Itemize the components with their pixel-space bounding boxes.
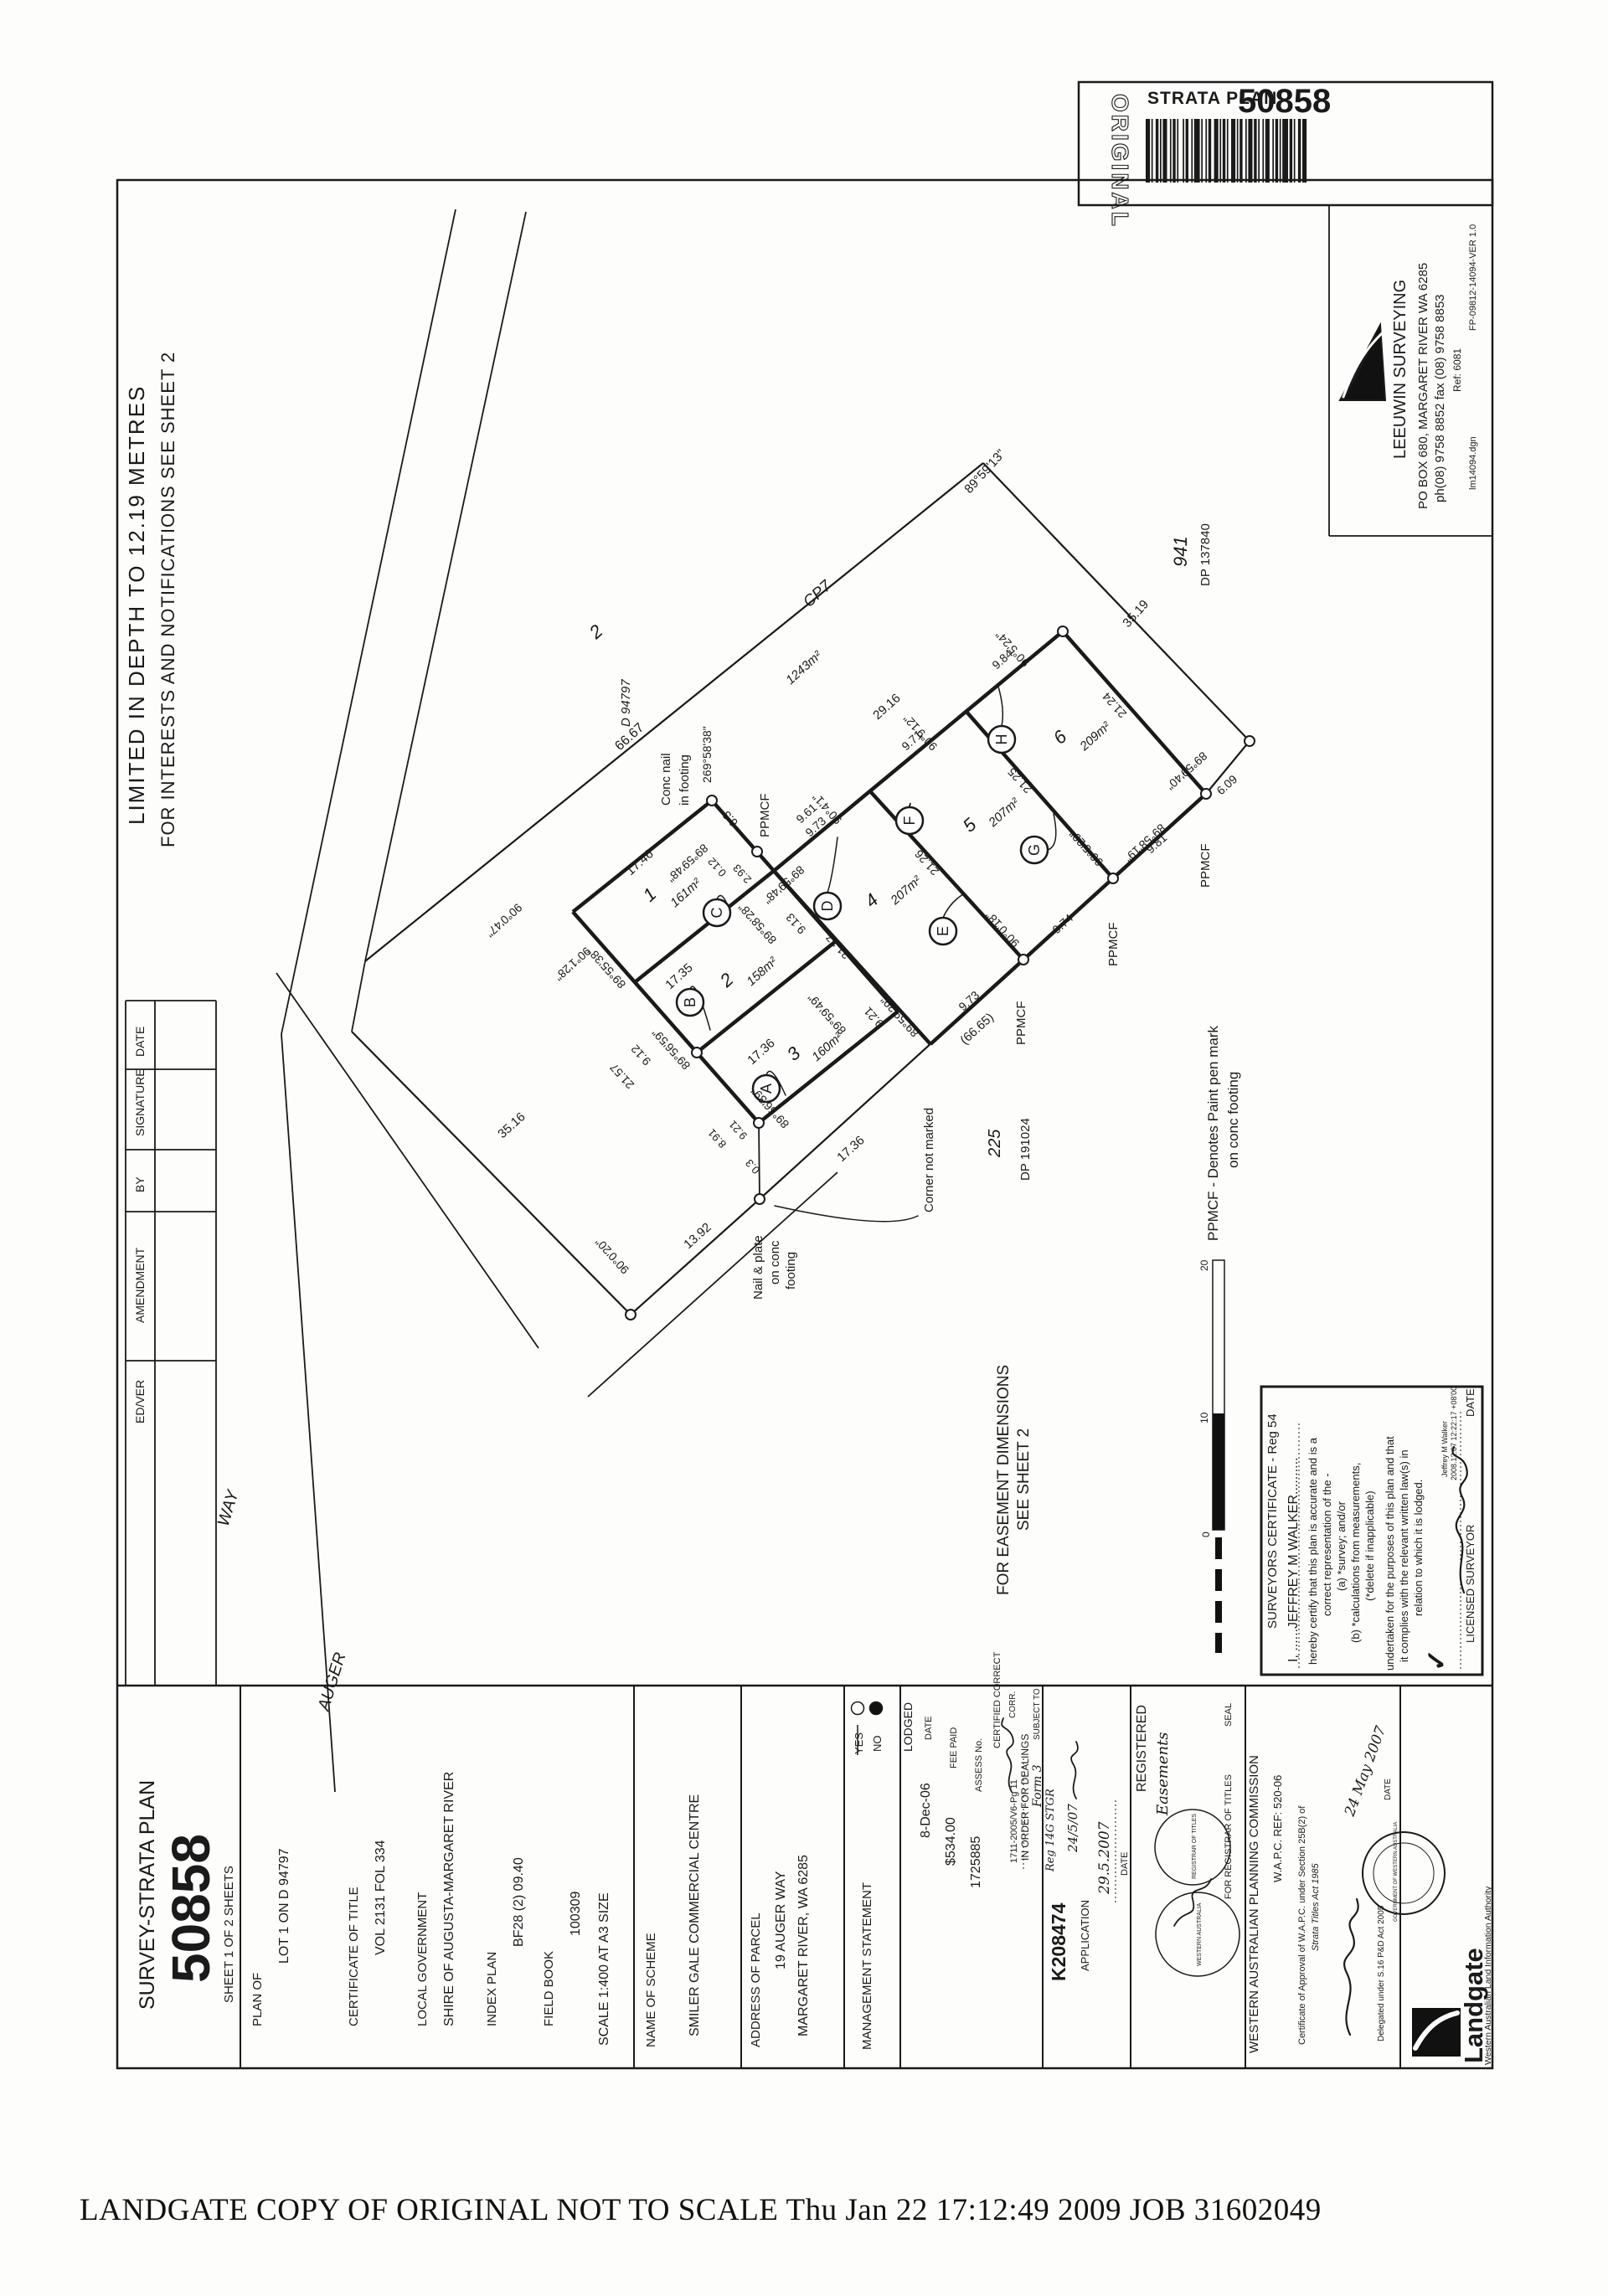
lot5-area: 207m² <box>986 795 1023 830</box>
plan-of-label: PLAN OF <box>250 1973 265 2026</box>
amend-h-signature: SIGNATURE <box>133 1068 147 1136</box>
survey-node <box>1108 873 1118 883</box>
barcode-bar <box>1276 119 1278 183</box>
street-near-lower <box>352 961 365 1032</box>
amend-h-by: BY <box>133 1176 147 1192</box>
seal2-text: WESTERN AUSTRALIA <box>1197 1902 1203 1966</box>
scale-label: SCALE 1:400 AT A3 SIZE <box>597 1892 611 2046</box>
dim: 6.09 <box>1214 772 1239 797</box>
scheme-label: NAME OF SCHEME <box>644 1933 658 2047</box>
note-ppmcf: PPMCF <box>1198 844 1213 888</box>
scalebar-black <box>1213 1413 1224 1530</box>
adj-lot2-dp: D 94797 <box>619 679 633 727</box>
bearing: 90°5'29" <box>1066 827 1105 868</box>
lodged-date: 8-Dec-06 <box>919 1783 933 1838</box>
lg-value: SHIRE OF AUGUSTA-MARGARET RIVER <box>442 1772 456 2026</box>
road-far-se <box>588 1172 837 1397</box>
adj-225: 225 <box>986 1129 1004 1158</box>
note-ppmcf: PPMCF <box>758 794 772 838</box>
bearing: 89°56'59" <box>649 1026 693 1072</box>
cert-lic: LICENSED SURVEYOR <box>1464 1525 1477 1643</box>
dim: 29.16 <box>870 691 903 723</box>
barcode-bar <box>1205 119 1207 183</box>
dim: 17.36 <box>834 1133 867 1165</box>
firm-name: LEEUWIN SURVEYING <box>1391 280 1410 459</box>
mgmt-yes: YES <box>853 1732 865 1754</box>
leader-corner <box>775 1206 918 1222</box>
survey-strata-plan-sheet: ABCDEFGHSTRATA PLAN50858ORIGINALLIMITED … <box>0 0 1608 2296</box>
note-conc-nail-2: in footing <box>678 754 692 806</box>
barcode-bar <box>1248 119 1252 183</box>
barcode-bar <box>1290 119 1292 183</box>
assess-value: 1725885 <box>969 1836 983 1888</box>
bdy-road-1392 <box>631 1199 760 1315</box>
dim: 0.12 <box>705 855 729 879</box>
amend-h-date: DATE <box>133 1027 147 1057</box>
unit-marker-letter-H: H <box>993 734 1010 745</box>
barcode-bar <box>1254 119 1256 183</box>
lot3-num: 3 <box>783 1042 805 1064</box>
scalebar-dash2 <box>1215 1569 1222 1591</box>
survey-node <box>692 1048 702 1058</box>
cert-line8: it complies with the relevant written la… <box>1398 1449 1410 1662</box>
survey-node <box>1201 789 1211 799</box>
barcode-bar <box>1201 119 1203 183</box>
scalebar-10: 10 <box>1198 1412 1210 1423</box>
mgmt-no: NO <box>871 1736 884 1753</box>
bearing: 90°1'28" <box>552 945 593 984</box>
wapc-seal-inner <box>1373 1843 1434 1903</box>
cert-line9: relation to which it is lodged. <box>1412 1480 1425 1616</box>
scalebar-0: 0 <box>1200 1532 1212 1537</box>
leader-D <box>827 837 837 893</box>
wapc-deleg: Delegated under S.16 P&D Act 2005 <box>1377 1905 1386 2041</box>
lot6-num: 6 <box>1049 725 1071 748</box>
cert-line3: correct representation of the - <box>1321 1473 1333 1616</box>
cert-line7: undertaken for the purposes of this plan… <box>1384 1436 1396 1671</box>
form3-hand: Form 3 <box>1031 1764 1044 1808</box>
dim: 9.21 <box>726 1118 750 1142</box>
survey-node <box>1058 626 1068 636</box>
note-nail-plate-2: on conc <box>768 1240 782 1284</box>
mgmt-label: MANAGEMENT STATEMENT <box>860 1882 874 2050</box>
sheet-border <box>117 180 1492 2068</box>
bearing: 89°58'28" <box>735 900 779 946</box>
bearing: 90°0'20" <box>592 1235 631 1276</box>
ct-value: VOL 2131 FOL 334 <box>374 1840 388 1955</box>
street-near-upper <box>365 212 526 961</box>
dim: 35.16 <box>495 1109 528 1141</box>
registered-label: REGISTERED <box>1135 1705 1149 1792</box>
cp7-offset <box>759 1123 760 1199</box>
road-far-sw <box>276 973 539 1348</box>
barcode-bar <box>1172 119 1175 183</box>
reg-hand: Reg 14G STGR <box>1044 1789 1057 1872</box>
unit-marker-letter-G: G <box>1026 844 1043 856</box>
bdy-frontage <box>352 1032 631 1315</box>
dim: 21.24 <box>1100 690 1129 721</box>
lot6-area: 209m² <box>1077 718 1114 754</box>
firm-fp: FP-09812-14094-VER 1.0 <box>1468 224 1478 331</box>
stamp-original: ORIGINAL <box>1107 94 1133 229</box>
depth-note-2: FOR INTERESTS AND NOTIFICATIONS SEE SHEE… <box>157 352 178 847</box>
wapc-seal-text: GOVERNMENT OF WESTERN AUSTRALIA <box>1394 1822 1399 1922</box>
dim: 2.93 <box>730 862 754 886</box>
barcode-bar <box>1209 119 1211 183</box>
lodged-date-label: DATE <box>924 1716 934 1740</box>
firm-file: lm14094.dgn <box>1468 436 1478 490</box>
cert-heading: SURVEYORS CERTIFICATE - Reg 54 <box>1265 1413 1280 1629</box>
barcode-bar <box>1146 119 1150 183</box>
survey-node <box>626 1310 636 1320</box>
dim: 9.13 <box>783 911 808 937</box>
fb-value: 100309 <box>569 1892 583 1936</box>
barcode-bar <box>1231 119 1235 183</box>
scalebar-dash3 <box>1215 1601 1222 1623</box>
easement-note-2: SEE SHEET 2 <box>1015 1429 1033 1531</box>
unit-marker-letter-E: E <box>935 926 951 936</box>
dim: 17.36 <box>745 1036 777 1068</box>
bearing: 90°0'47" <box>483 901 524 940</box>
app-date-label: DATE <box>1120 1851 1130 1876</box>
landgate-sub: Western Australian Land Information Auth… <box>1483 1886 1493 2065</box>
barcode-bar <box>1258 119 1260 183</box>
plan-title: SURVEY-STRATA PLAN <box>136 1780 159 2010</box>
wapc-ref: W.A.P.C. REF: 520-06 <box>1271 1775 1284 1882</box>
barcode-bar <box>1183 119 1184 183</box>
barcode-bar <box>1177 119 1178 183</box>
firm-addr: PO BOX 680, MARGARET RIVER WA 6285 <box>1416 263 1430 509</box>
mgmt-radio-no <box>870 1702 883 1715</box>
scalebar-dash4 <box>1215 1633 1222 1653</box>
leader-H <box>998 687 1002 726</box>
cert-date: DATE <box>1464 1388 1477 1417</box>
cert-line5: (b) *calculations from measurements, <box>1349 1463 1362 1643</box>
survey-node <box>1018 955 1028 965</box>
firm-ref: Ref: 6081 <box>1451 348 1463 392</box>
barcode-bar <box>1237 119 1239 183</box>
adj-941-dp: DP 137840 <box>1198 523 1213 586</box>
assess-label: ASSESS No. <box>974 1738 984 1792</box>
note-corner: Corner not marked <box>922 1108 936 1212</box>
dim: 35.19 <box>1120 597 1152 630</box>
barcode-bar <box>1294 119 1296 183</box>
bearing: 89°59'13" <box>961 447 1008 497</box>
scalebar-20: 20 <box>1198 1259 1210 1271</box>
fee-label: FEE PAID <box>949 1727 959 1768</box>
lots123-wbdy <box>573 912 759 1123</box>
application-no: K208474 <box>1048 1902 1069 1981</box>
lg-label: LOCAL GOVERNMENT <box>415 1892 430 2026</box>
barcode-bar <box>1219 119 1221 183</box>
survey-node <box>754 1118 764 1128</box>
dim: 13.92 <box>681 1220 714 1252</box>
note-ppmcf: PPMCF <box>1014 1001 1028 1046</box>
survey-node <box>707 795 717 806</box>
barcode-bar <box>1302 119 1306 183</box>
unit-marker-letter-F: F <box>901 816 918 826</box>
bearing: 89°59'29" <box>878 993 921 1039</box>
cp7-area: 1243m² <box>783 648 825 687</box>
note-conc-nail-1: Conc nail <box>659 753 673 806</box>
adj-lot2: 2 <box>585 620 607 643</box>
barcode-bar <box>1162 119 1167 183</box>
sig-application <box>1071 1742 1078 1799</box>
unit-marker-letter-B: B <box>682 997 698 1007</box>
registered-hand: Easements <box>1154 1732 1172 1816</box>
unit-marker-letter-D: D <box>819 901 836 912</box>
plan-of: LOT 1 ON D 94797 <box>277 1848 291 1964</box>
lot1-num: 1 <box>639 883 661 906</box>
ppmcf-note-2: on conc footing <box>1225 1072 1241 1168</box>
index-label: INDEX PLAN <box>485 1952 499 2026</box>
index-value: BF28 (2) 09.40 <box>512 1857 526 1947</box>
bearing: 90°0'18" <box>982 909 1022 950</box>
barcode-bar <box>1239 119 1242 183</box>
barcode-bar <box>1262 119 1264 183</box>
barcode-bar <box>1170 119 1172 183</box>
wapc-seal-outer <box>1363 1832 1445 1914</box>
sig-wapc <box>1344 1899 1358 2035</box>
adj-225-dp: DP 191024 <box>1018 1118 1033 1181</box>
barcode-bar <box>1186 119 1188 183</box>
unit-marker-letter-C: C <box>709 908 725 919</box>
note-ppmcf: PPMCF <box>1106 923 1121 967</box>
note-nail-plate-3: footing <box>784 1252 798 1290</box>
cert-line6: (*delete if inapplicable) <box>1363 1490 1376 1601</box>
barcode-bar <box>1191 119 1193 183</box>
barcode-bar <box>1280 119 1281 183</box>
barcode-bar <box>1282 119 1288 183</box>
barcode-bar <box>1265 119 1270 183</box>
barcode-bar <box>1298 119 1301 183</box>
lot4-num: 4 <box>861 889 883 912</box>
address-label: ADDRESS OF PARCEL <box>749 1912 763 2047</box>
seal1-text: REGISTRAR OF TITLES <box>1192 1814 1198 1879</box>
lot2-num: 2 <box>715 969 738 991</box>
firm-phone: ph(08) 9758 8852 fax (08) 9758 8853 <box>1433 294 1447 502</box>
landgate-copy-footer: LANDGATE COPY OF ORIGINAL NOT TO SCALE T… <box>80 2192 1503 2228</box>
corr-value: 1711-2005/V6-Pg 11 <box>1009 1779 1019 1863</box>
certified-label: CERTIFIED CORRECT <box>992 1651 1002 1748</box>
dim: 9.12 <box>628 1042 653 1068</box>
barcode-bar <box>1152 119 1153 183</box>
scalebar-dash1 <box>1215 1537 1222 1559</box>
corr-label: CORR. <box>1008 1691 1018 1718</box>
fb-label: FIELD BOOK <box>542 1951 556 2026</box>
amend-h-amendment: AMENDMENT <box>133 1247 147 1323</box>
application-label: APPLICATION <box>1079 1900 1091 1971</box>
plan-sheet: SHEET 1 OF 2 SHEETS <box>222 1866 236 2003</box>
barcode-bar <box>1214 119 1219 183</box>
seal-label: SEAL <box>1224 1703 1234 1727</box>
lot2-area: 158m² <box>744 954 781 989</box>
subject-label: SUBJECT TO <box>1033 1688 1042 1740</box>
lodged-label: LODGED <box>901 1702 915 1752</box>
wapc-cert1: Certificate of Approval of W.A.P.C. unde… <box>1297 1805 1307 2045</box>
bearing: 89°59'49" <box>805 991 848 1037</box>
ct-label: CERTIFICATE OF TITLE <box>347 1887 361 2026</box>
leader-E <box>943 894 963 918</box>
survey-node <box>755 1194 765 1204</box>
easement-note-1: FOR EASEMENT DIMENSIONS <box>995 1365 1013 1595</box>
ppmcf-note-1: PPMCF - Denotes Paint pen mark <box>1205 1026 1221 1241</box>
wapc-date-hand: 24 May 2007 <box>1342 1724 1390 1820</box>
plan-number: 50858 <box>161 1834 221 1983</box>
fee-value: $534.00 <box>944 1817 958 1866</box>
scheme-value: SMILER GALE COMMERCIAL CENTRE <box>688 1794 702 2036</box>
sig-seal-initials <box>1174 1879 1211 1926</box>
depth-note-1: LIMITED IN DEPTH TO 12.19 METRES <box>124 385 149 825</box>
amend-h-edver: ED/VER <box>133 1380 147 1423</box>
wapc-cert2: Strata Titles Act 1985 <box>1311 1862 1321 1951</box>
bearing: 269°58'38" <box>700 726 714 783</box>
cert-line2: hereby certify that this plan is accurat… <box>1306 1437 1319 1665</box>
adj-941: 941 <box>1170 536 1191 567</box>
barcode-bar <box>1223 119 1225 183</box>
barcode-bar <box>1160 119 1162 183</box>
dim: 17.46 <box>623 847 656 878</box>
barcode-bar <box>1194 119 1200 183</box>
bearing: 89°59'48" <box>664 842 710 885</box>
mgmt-radio-yes <box>852 1702 864 1715</box>
dim: 21.57 <box>607 1061 636 1092</box>
barcode-bar <box>1156 119 1158 183</box>
date-hand: 24/5/07 <box>1065 1804 1080 1853</box>
wapc-label: WESTERN AUSTRALIAN PLANNING COMMISSION <box>1247 1755 1261 2053</box>
address-2: MARGARET RIVER, WA 6285 <box>796 1855 811 2036</box>
address-1: 19 AUGER WAY <box>774 1871 788 1969</box>
street-auger: AUGER <box>314 1650 349 1713</box>
cert-digi1: Jeffrey M Walker <box>1440 1421 1449 1477</box>
cert-check: ✓ <box>1421 1649 1451 1671</box>
cert-line1: I, ......JEFFREY M WALKER.......... <box>1286 1458 1301 1662</box>
dim: 8.91 <box>705 1126 729 1151</box>
leader-G <box>1048 814 1056 850</box>
barcode-bar <box>1227 119 1229 183</box>
survey-node <box>1245 736 1255 746</box>
barcode-bar <box>1272 119 1274 183</box>
cert-digi2: 2008.12.07 12:22:17 +08'00' <box>1450 1385 1458 1480</box>
dealings-label: IN ORDER FOR DEALINGS <box>1019 1734 1031 1861</box>
stamp-number: 50858 <box>1238 83 1331 120</box>
lot5-num: 5 <box>959 813 981 836</box>
street-way: WAY <box>214 1487 243 1529</box>
app-date-hand: 29.5.2007 <box>1096 1821 1113 1895</box>
wapc-date-label: DATE <box>1384 1779 1393 1800</box>
survey-node <box>752 847 762 857</box>
lot4-area: 207m² <box>888 873 925 908</box>
registrar-label: FOR REGISTRAR OF TITLES <box>1224 1774 1234 1899</box>
dim: 9.73 <box>956 988 982 1013</box>
scanned-plan-page: ABCDEFGHSTRATA PLAN50858ORIGINALLIMITED … <box>0 0 1608 2296</box>
barcode-bar <box>1245 119 1247 183</box>
note-nail-plate-1: Nail & plate <box>751 1235 765 1300</box>
cert-line4: (a) *survey; and/or <box>1335 1501 1348 1591</box>
